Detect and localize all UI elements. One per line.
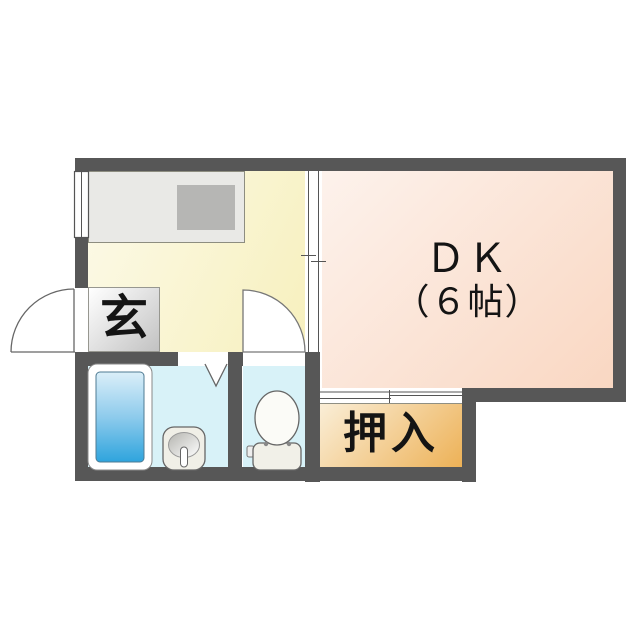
wall-bottom	[75, 467, 476, 481]
closet-label: 押入	[343, 412, 439, 460]
wall-toilet-closet	[305, 352, 320, 482]
wall-top	[75, 158, 626, 171]
dk-size-label: （６帖）	[393, 281, 541, 323]
dk-label: ＤＫ	[426, 237, 510, 281]
wall-left-lower	[75, 352, 88, 481]
room-closet: 押入	[320, 403, 462, 468]
wall-below-genkan	[88, 352, 178, 366]
wall-left-upper	[75, 238, 88, 288]
room-dk: ＤＫ （６帖）	[322, 171, 613, 388]
window-symbol	[75, 172, 89, 238]
sliding-door-band-kitchen-dk	[305, 171, 322, 352]
wall-washroom-toilet	[228, 366, 242, 467]
stove-top	[177, 185, 235, 230]
sliding-door-band-closet	[320, 389, 462, 403]
genkan-label: 玄	[100, 295, 148, 345]
wall-doorway-block	[228, 352, 243, 366]
wall-right	[613, 171, 626, 402]
entrance-door-arc	[11, 289, 75, 352]
wall-dk-bottom	[462, 388, 626, 402]
room-toilet	[243, 366, 305, 467]
room-genkan: 玄	[88, 287, 160, 352]
floor-plan: ＤＫ （６帖） 押入 玄	[0, 0, 640, 640]
room-washroom	[88, 366, 228, 467]
